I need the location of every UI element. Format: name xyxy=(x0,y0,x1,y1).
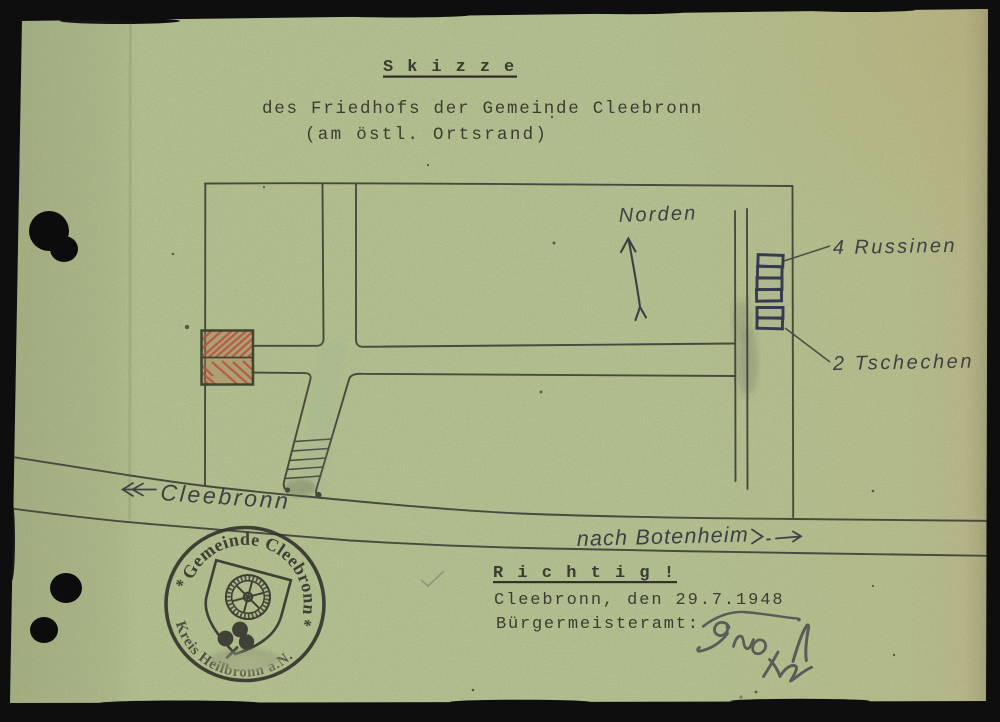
svg-text:R i c h t i g !: R i c h t i g ! xyxy=(493,564,676,583)
svg-text:Norden: Norden xyxy=(618,202,698,227)
svg-text:Bürgermeisteramt:: Bürgermeisteramt: xyxy=(496,615,700,634)
svg-text:2 Tschechen: 2 Tschechen xyxy=(832,351,975,375)
svg-text:S k i z z e: S k i z z e xyxy=(383,58,516,77)
svg-text:4 Russinen: 4 Russinen xyxy=(833,235,957,259)
svg-text:Cleebronn, den 29.7.1948: Cleebronn, den 29.7.1948 xyxy=(494,591,784,610)
svg-text:nach Botenheim: nach Botenheim xyxy=(577,522,750,550)
svg-text:(am östl. Ortsrand): (am östl. Ortsrand) xyxy=(305,125,548,145)
svg-text:des Friedhofs der Gemeinde Cle: des Friedhofs der Gemeinde Cleebronn xyxy=(262,99,703,119)
